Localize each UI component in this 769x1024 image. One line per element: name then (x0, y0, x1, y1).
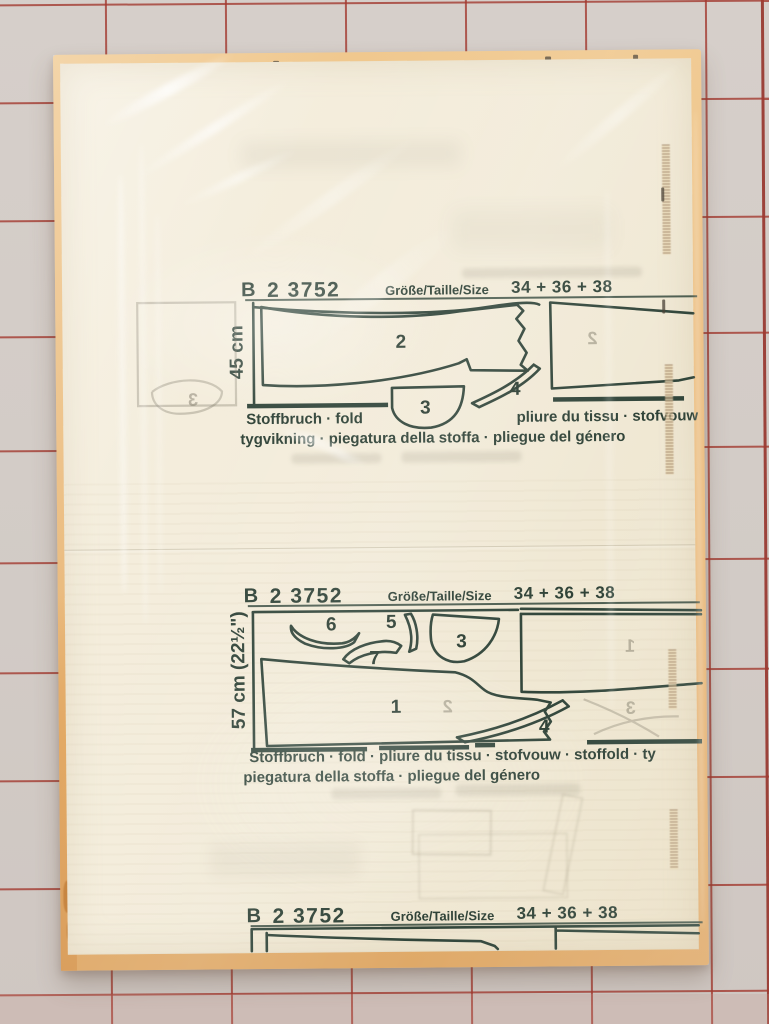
ghost-piece-1-label: 1 (625, 636, 635, 656)
showthrough-smudge (210, 842, 360, 877)
edge-arrow-mark (662, 300, 665, 314)
piece-4-outline (457, 700, 569, 742)
size-values: 34 + 36 + 38 (511, 277, 613, 298)
instruction-sheet (60, 58, 699, 954)
size-values: 34 + 36 + 38 (514, 583, 616, 604)
sewing-pattern-package: B 2 3752 Größe/Taille/Size 34 + 36 + 38 … (53, 49, 709, 971)
edge-ruler-hatch (665, 364, 674, 474)
piece-outline-partial (267, 933, 498, 951)
showthrough-smudge (292, 453, 382, 464)
piece-4-label: 4 (510, 379, 521, 400)
fold-caption-left: Stoffbruch · fold (246, 410, 363, 428)
piece-4-label: 4 (539, 717, 550, 738)
cutting-diagram-partial (141, 923, 701, 952)
piece-3-label: 3 (456, 631, 467, 652)
piece-5-outline (405, 614, 418, 652)
size-values: 34 + 36 + 38 (516, 903, 618, 924)
piece-2-label: 2 (395, 332, 406, 353)
fold-line-dashes (247, 398, 684, 406)
piece-1-label: 1 (391, 697, 402, 718)
layout-box-left-edge (253, 303, 254, 406)
grid-line-horizontal (0, 0, 769, 6)
ghost-piece-2-label: 2 (443, 696, 453, 716)
mat-edge-tint (0, 994, 769, 1024)
ghost-piece-outline (152, 380, 222, 414)
size-label: Größe/Taille/Size (388, 588, 492, 604)
edge-arrow-mark (661, 188, 664, 202)
grid-border-line (761, 0, 769, 1024)
piece-2-outline (261, 305, 528, 387)
showthrough-smudge (331, 787, 441, 799)
showthrough-smudge (451, 209, 611, 250)
ghost-piece-3-label: 3 (626, 698, 636, 718)
piece-6-label: 6 (326, 614, 337, 635)
showthrough-smudge (401, 451, 521, 463)
edge-ruler-hatch (668, 649, 677, 709)
size-label: Größe/Taille/Size (390, 908, 494, 924)
right-panel-outline (556, 926, 699, 948)
piece-7-label: 7 (369, 648, 380, 669)
piece-6-outline (291, 625, 359, 648)
edge-ruler-hatch (670, 809, 679, 869)
size-label: Größe/Taille/Size (385, 282, 489, 298)
piece-5-label: 5 (386, 612, 397, 633)
photo-cutting-mat-scene: B 2 3752 Größe/Taille/Size 34 + 36 + 38 … (0, 0, 769, 1024)
ghost-piece-2-label: 2 (587, 328, 597, 348)
showthrough-smudge (241, 140, 461, 168)
layout-box-left-edge (253, 612, 254, 749)
ghost-piece-3-label: 3 (188, 390, 198, 410)
